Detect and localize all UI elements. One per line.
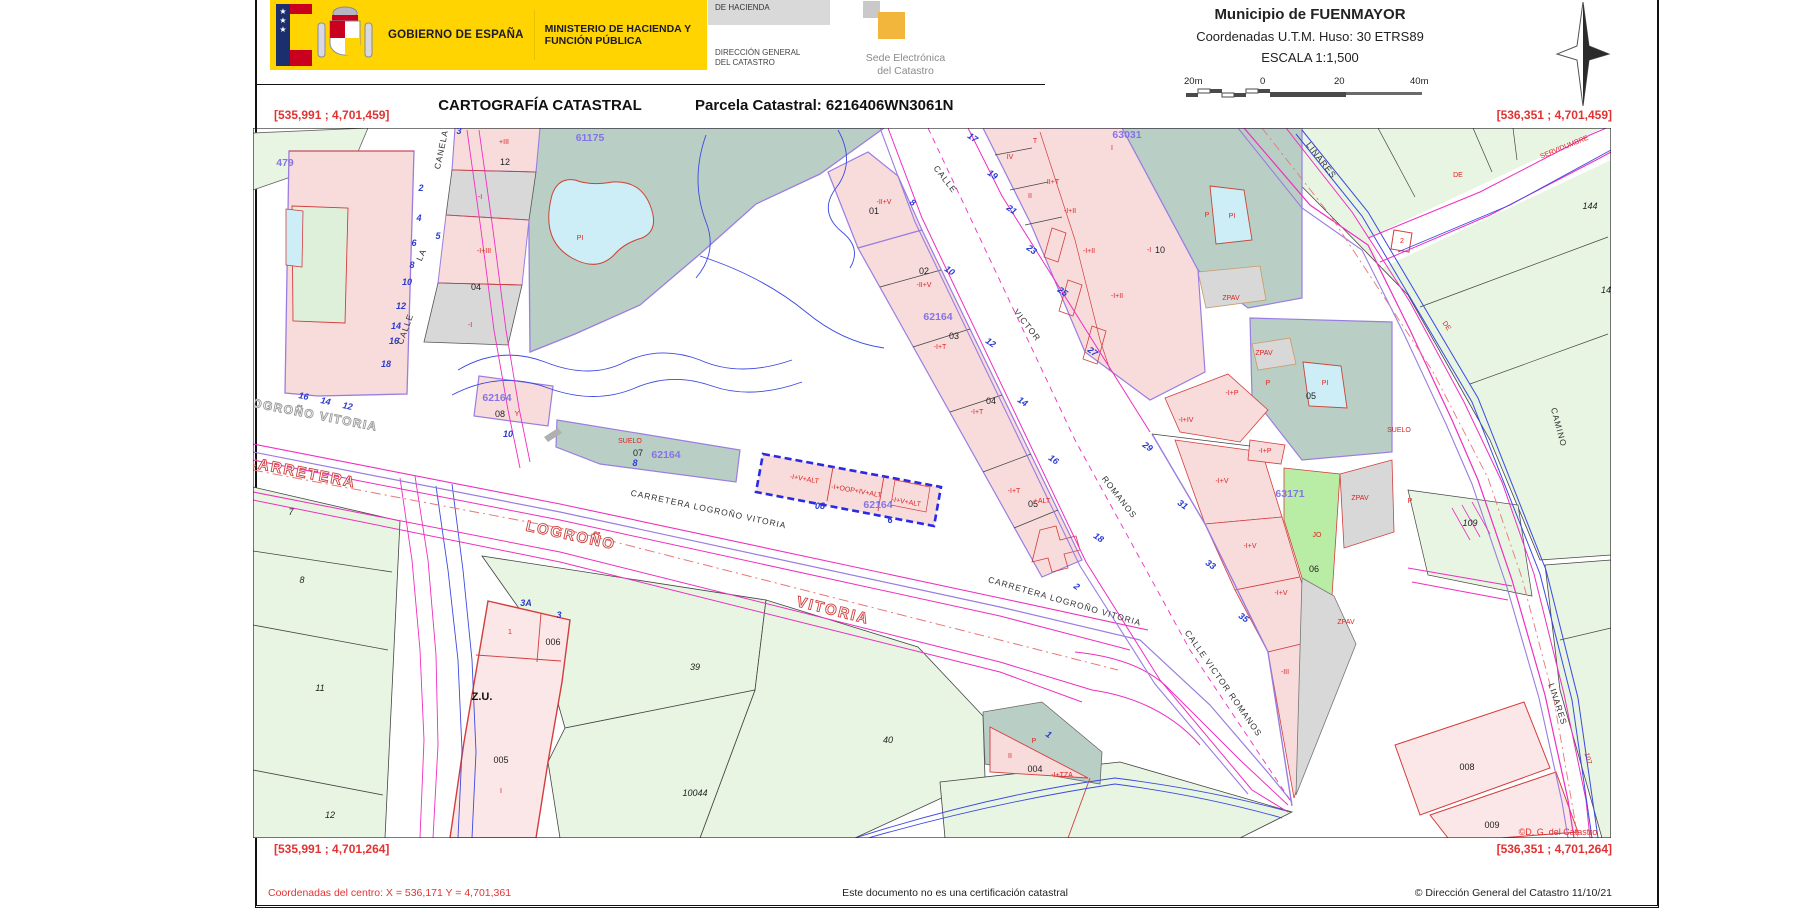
- map-label-num: 005: [493, 755, 508, 765]
- map-shape: [458, 353, 792, 371]
- direccion-general-label: DIRECCIÓN GENERALDEL CATASTRO: [715, 48, 800, 68]
- scalebar-left-label: 20m: [1184, 76, 1202, 87]
- map-label-addr: 14: [1016, 395, 1030, 409]
- map-shape: [1075, 652, 1165, 685]
- coat-of-arms-icon: [312, 3, 378, 67]
- map-label-red: 2: [1400, 238, 1404, 245]
- map-label-red: I: [500, 788, 502, 795]
- map-label-addr: 31: [1176, 498, 1190, 512]
- map-label-red: 1: [508, 629, 512, 636]
- map-label-street: ROMANOS: [1100, 474, 1139, 520]
- map-label-red: -I+P: [1225, 390, 1238, 397]
- map-label-addr: 18: [381, 359, 391, 369]
- map-label-pnum: 479: [276, 157, 294, 169]
- map-label-pnum: 63171: [1275, 488, 1304, 500]
- map-label-pnum: 61175: [576, 132, 605, 144]
- map-label-red: -II+V: [877, 199, 892, 206]
- map-label-red: PI: [577, 235, 584, 242]
- map-label-red: -I+IV: [1179, 417, 1194, 424]
- map-label-street: VICTOR: [1012, 307, 1043, 343]
- map-label-red: ZPAV: [1337, 619, 1355, 626]
- map-label-hollow: CARRETERA: [253, 454, 358, 492]
- map-label-addr: 16: [1047, 453, 1062, 468]
- map-label-addr: 4: [415, 213, 421, 223]
- map-shape: [286, 209, 303, 267]
- map-label-numi: 10044: [682, 788, 707, 798]
- map-label-numi: 14: [1601, 285, 1611, 295]
- map-label-addr: 3A: [520, 598, 532, 608]
- map-shape: [452, 128, 540, 172]
- map-label-addr: 3: [556, 610, 561, 620]
- map-label-addr: 08: [815, 501, 825, 511]
- map-label-red: JO: [1313, 532, 1323, 539]
- gobierno-label: GOBIERNO DE ESPAÑA: [388, 29, 524, 42]
- map-label-red: P: [1408, 498, 1413, 505]
- map-label-pnum: 63031: [1112, 129, 1141, 141]
- map-label-red: P: [1205, 212, 1210, 219]
- map-shape: [253, 487, 400, 838]
- map-label-addr: 10: [503, 429, 513, 439]
- map-label-num: 02: [919, 266, 929, 276]
- map-label-num: 07: [633, 448, 643, 458]
- map-label-zu: Z.U.: [472, 691, 493, 703]
- map-label-numi: 11: [315, 683, 324, 693]
- map-label-pnum: 62164: [482, 392, 511, 404]
- map-label-red: II+T: [1047, 179, 1060, 186]
- map-label-red: P: [1032, 738, 1037, 745]
- map-label-num: 08: [495, 409, 505, 419]
- map-label-addr: 16: [298, 390, 311, 402]
- map-label-red: ZPAV: [1255, 350, 1273, 357]
- map-label-wm: ©D. G. del Catastro: [1519, 827, 1598, 837]
- map-label-num: 05: [1306, 391, 1316, 401]
- map-label-addr: 3: [456, 128, 461, 136]
- map-shape: [415, 476, 438, 838]
- map-label-numi: 8: [299, 575, 304, 585]
- map-label-red: -I+V: [1215, 478, 1228, 485]
- map-label-addr: 10: [402, 277, 412, 287]
- map-label-red: Y: [515, 411, 520, 418]
- map-label-street: CALLE: [932, 163, 960, 194]
- map-label-red: -I+T: [971, 409, 984, 416]
- map-label-addr: 14: [320, 395, 332, 407]
- map-label-red: DE: [1453, 172, 1463, 179]
- scalebar-mid-label: 20: [1334, 76, 1345, 87]
- map-shape: [1340, 460, 1394, 548]
- north-compass-icon: [1552, 2, 1614, 106]
- map-label-red: IV: [1007, 154, 1014, 161]
- map-label-red: -I+V: [1243, 543, 1256, 550]
- map-label-numi: 12: [325, 810, 335, 820]
- map-label-num: 12: [500, 157, 510, 167]
- map-label-red: -I+II: [1064, 208, 1076, 215]
- map-shape: [700, 256, 884, 348]
- header-divider: [255, 84, 1045, 85]
- map-label-numi: 39: [690, 662, 700, 672]
- map-label-addr: 5: [435, 231, 441, 241]
- footer-disclaimer: Este documento no es una certificación c…: [655, 887, 1255, 899]
- sede-electronica-label: Sede Electrónicadel Catastro: [838, 52, 973, 78]
- map-label-red: -I+II: [1111, 293, 1123, 300]
- escala-label: ESCALA 1:1,500: [1130, 50, 1490, 65]
- map-label-num: 06: [1309, 564, 1319, 574]
- map-label-red: T: [1033, 138, 1038, 145]
- ministerio-label: MINISTERIO DE HACIENDA Y FUNCIÓN PÚBLICA: [545, 23, 695, 48]
- secretaria-box: DE HACIENDA: [708, 0, 830, 25]
- map-label-addr: 21: [1004, 202, 1019, 217]
- map-label-pnum: 62164: [651, 449, 680, 461]
- corner-coord-bottom-left: [535,991 ; 4,701,264]: [274, 842, 389, 856]
- scalebar: [1186, 88, 1432, 100]
- map-label-addr: 2: [1071, 580, 1082, 592]
- cadastral-map: 4796117562164621646216462164630316317112…: [253, 128, 1611, 838]
- map-label-num: 008: [1459, 762, 1474, 772]
- map-label-red: I: [1111, 145, 1113, 152]
- municipio-title: Municipio de FUENMAYOR: [1130, 6, 1490, 23]
- map-label-red: +III: [499, 139, 509, 146]
- map-label-red: -I+V: [1274, 590, 1287, 597]
- map-label-addr: 2: [417, 183, 423, 193]
- map-shape: [1296, 578, 1356, 795]
- map-label-red: -I: [468, 322, 472, 329]
- map-label-addr: 33: [1204, 558, 1218, 572]
- map-label-red: -III: [1281, 669, 1289, 676]
- map-label-addr: 17: [966, 131, 981, 146]
- map-label-addr: 18: [1092, 531, 1106, 545]
- map-label-num: 10: [1155, 245, 1165, 255]
- map-label-addr: 19: [986, 168, 1000, 182]
- map-label-numi: 40: [883, 735, 893, 745]
- corner-coord-bottom-right: [536,351 ; 4,701,264]: [1312, 842, 1612, 856]
- map-label-num: 04: [986, 396, 996, 406]
- map-label-street: CARRETERA LOGROÑO VITORIA: [987, 574, 1143, 627]
- map-label-red: PI: [1229, 213, 1236, 220]
- map-label-num: 004: [1027, 764, 1042, 774]
- map-label-red: -I+T: [1008, 488, 1021, 495]
- map-label-num: 01: [869, 206, 879, 216]
- map-label-addr: 12: [984, 336, 998, 350]
- scalebar-zero-label: 0: [1260, 76, 1265, 87]
- map-label-pnum: 62164: [863, 499, 892, 511]
- map-label-addr: 12: [396, 301, 406, 311]
- banner-separator: [534, 10, 535, 60]
- map-label-pnum: 62164: [923, 311, 952, 323]
- map-label-red: -II+V: [917, 282, 932, 289]
- map-label-hgray: LOGROÑO VITORIA: [253, 393, 379, 434]
- map-label-red: II: [1028, 193, 1032, 200]
- map-label-red: II: [1008, 753, 1012, 760]
- map-label-red: ZPAV: [1222, 295, 1240, 302]
- map-label-numi: 144: [1582, 201, 1597, 211]
- map-label-red: ZPAV: [1351, 495, 1369, 502]
- map-label-red: PI: [1322, 380, 1329, 387]
- map-label-red: -I+T: [934, 344, 947, 351]
- map-label-red: -I: [478, 194, 482, 201]
- map-shape: [556, 420, 740, 482]
- map-label-red: -I: [1147, 247, 1151, 254]
- map-label-numi: 109: [1462, 518, 1477, 528]
- corner-coord-top-right: [536,351 ; 4,701,459]: [1312, 108, 1612, 122]
- map-label-street: LA: [414, 247, 428, 262]
- footer-copyright: © Dirección General del Catastro 11/10/2…: [1230, 887, 1612, 899]
- utm-subtitle: Coordenadas U.T.M. Huso: 30 ETRS89: [1130, 29, 1490, 44]
- corner-coord-top-left: [535,991 ; 4,701,459]: [274, 108, 389, 122]
- map-label-num: 03: [949, 331, 959, 341]
- map-label-num: 04: [471, 282, 481, 292]
- scalebar-right-label: 40m: [1410, 76, 1428, 87]
- map-label-red: P: [1266, 380, 1271, 387]
- map-title: CARTOGRAFÍA CATASTRAL: [420, 97, 660, 114]
- map-label-red: -I+TZA: [1051, 772, 1073, 779]
- map-label-red: -I+III: [477, 248, 491, 255]
- map-label-red: SUELO: [1387, 427, 1411, 434]
- spain-flag-icon: ★★★: [276, 4, 312, 66]
- page: { "header": { "gobierno": "GOBIERNO DE E…: [0, 0, 1819, 913]
- map-label-red: SUELO: [618, 438, 642, 445]
- map-label-red: +ALT: [1034, 498, 1051, 505]
- map-label-addr: 8: [632, 458, 637, 468]
- map-label-street: CANELA: [432, 129, 450, 170]
- map-label-addr: 23: [1024, 242, 1039, 257]
- gobierno-banner: ★★★ GOBIERNO DE ESPAÑA MINISTERIO DE HAC…: [270, 0, 707, 70]
- footer-center-coords: Coordenadas del centro: X = 536,171 Y = …: [268, 887, 511, 899]
- map-label-num: 006: [545, 637, 560, 647]
- map-label-addr: 12: [342, 400, 354, 412]
- map-label-addr: 8: [409, 260, 414, 270]
- map-label-red: -I+II: [1083, 248, 1095, 255]
- parcel-reference: Parcela Catastral: 6216406WN3061N: [695, 97, 954, 114]
- map-label-addr: 6: [411, 238, 417, 248]
- sede-electronica-icon: [863, 1, 913, 41]
- map-label-red: -I+P: [1258, 448, 1271, 455]
- map-label-num: 009: [1484, 820, 1499, 830]
- map-label-addr: 29: [1140, 439, 1155, 454]
